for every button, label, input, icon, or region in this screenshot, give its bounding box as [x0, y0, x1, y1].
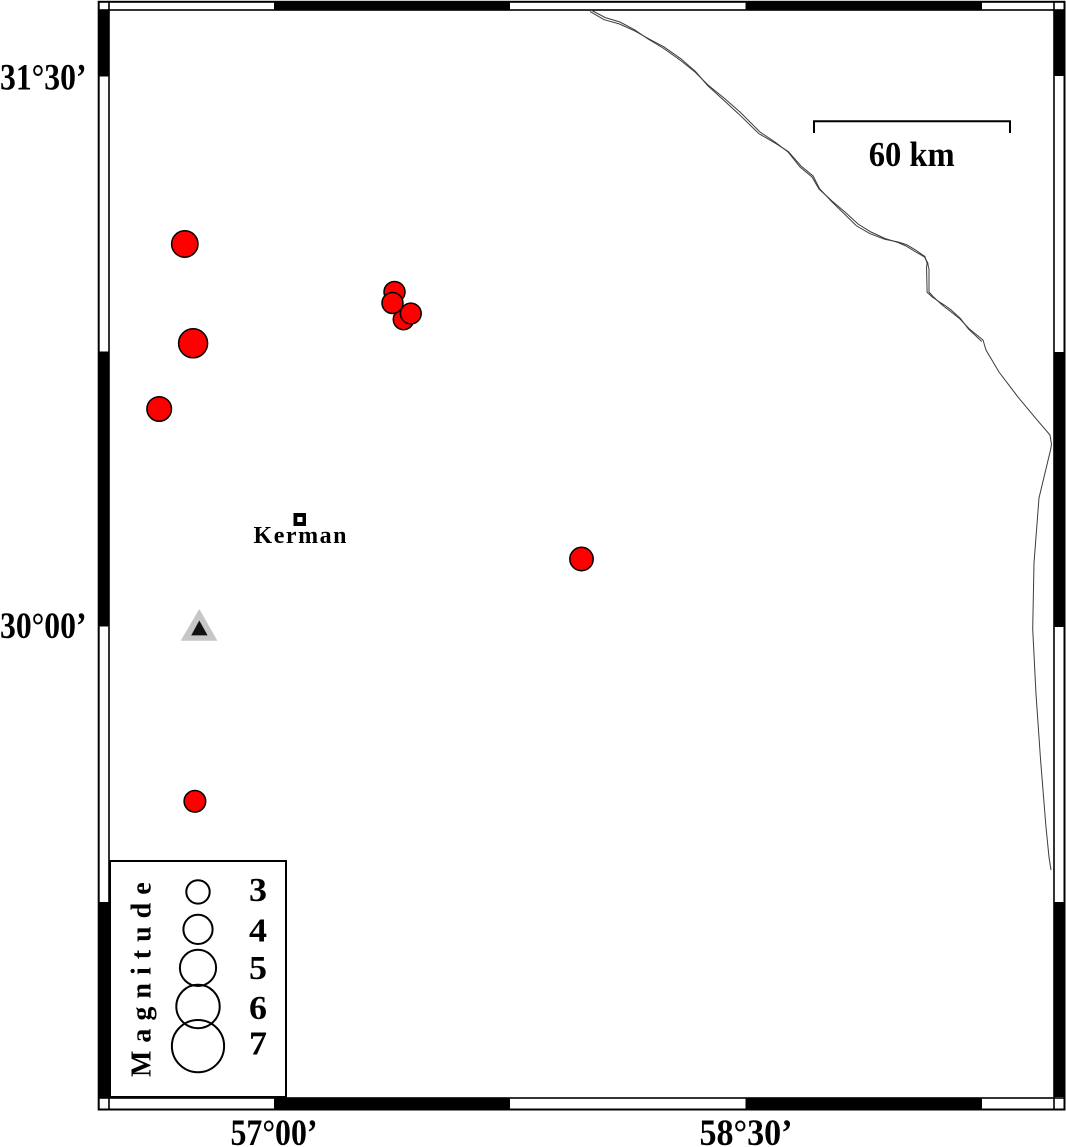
svg-text:Magnitude: Magnitude: [127, 874, 158, 1077]
svg-text:7: 7: [249, 1025, 267, 1062]
svg-text:58°30’: 58°30’: [700, 1113, 793, 1147]
svg-text:31°30’: 31°30’: [0, 58, 87, 99]
svg-text:5: 5: [249, 950, 267, 987]
svg-text:4: 4: [249, 913, 267, 950]
svg-text:3: 3: [249, 872, 267, 909]
svg-text:60 km: 60 km: [869, 135, 955, 174]
svg-text:Kerman: Kerman: [254, 523, 347, 549]
svg-text:6: 6: [249, 990, 267, 1027]
svg-text:30°00’: 30°00’: [0, 606, 87, 647]
svg-text:57°00’: 57°00’: [231, 1113, 318, 1147]
